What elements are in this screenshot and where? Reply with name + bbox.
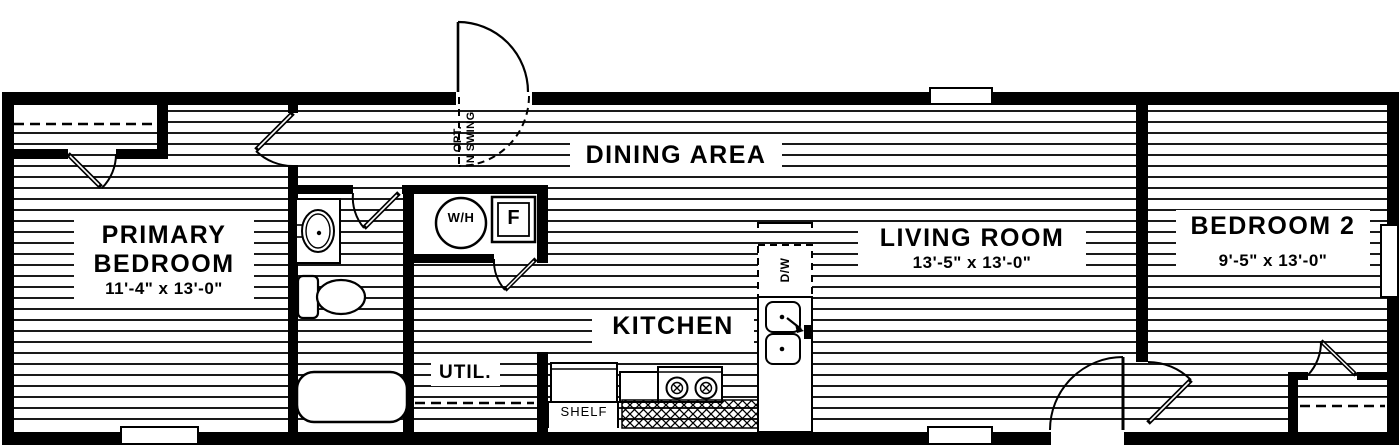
room-name: BEDROOM 2	[1184, 212, 1362, 241]
window-living-bottom	[927, 426, 993, 445]
room-name: BEDROOM	[82, 250, 246, 279]
floor-plan: DINING AREA PRIMARY BEDROOM 11'-4" x 13'…	[0, 0, 1400, 448]
wall-bedroom2-closet-top-left	[1288, 372, 1308, 380]
wall-primary-bedroom	[288, 165, 298, 432]
wall-kitchen-utility-divider	[537, 352, 548, 432]
wall-bedroom2-closet-left	[1288, 372, 1298, 432]
door-swing-note-line1: OPT.	[452, 106, 465, 172]
window-living-top	[929, 87, 993, 105]
room-name: KITCHEN	[600, 312, 746, 341]
wall-exterior-bottom	[2, 432, 1399, 445]
room-label-utility: UTIL.	[431, 360, 500, 386]
wall-utility-closet-bottom	[414, 254, 494, 263]
shelf-label: SHELF	[553, 404, 615, 419]
wall-bathroom-top	[293, 185, 353, 194]
room-dimensions: 13'-5" x 13'-0"	[866, 253, 1078, 273]
rear-door-opening	[1051, 431, 1124, 446]
wall-living-bedroom2-divider	[1136, 105, 1148, 362]
window-primary-bedroom	[120, 426, 199, 445]
wall-bathroom-right	[403, 185, 414, 432]
wall-bedroom2-closet-top-right	[1357, 372, 1387, 380]
room-dimensions: 11'-4" x 13'-0"	[82, 279, 246, 299]
furnace-label: F	[498, 207, 529, 230]
water-heater-label: W/H	[436, 210, 486, 225]
window-bedroom2	[1380, 224, 1399, 298]
door-swing-note: OPT. IN SWING	[452, 106, 478, 172]
wall-utility-closet-right	[537, 185, 548, 263]
room-name: DINING AREA	[578, 141, 774, 170]
wall-primary-closet-bottom-left	[14, 149, 68, 159]
room-name: LIVING ROOM	[866, 224, 1078, 253]
front-door-opening	[456, 91, 532, 106]
wall-primary-bedroom-stub	[288, 105, 298, 113]
wall-utility-closet-top	[402, 185, 548, 194]
dishwasher-label: D/W	[778, 243, 792, 297]
room-label-living: LIVING ROOM 13'-5" x 13'-0"	[858, 222, 1086, 275]
wall-primary-closet-bottom-right	[116, 149, 168, 159]
door-swing-note-line2: IN SWING	[465, 106, 478, 172]
room-name: PRIMARY	[82, 221, 246, 250]
room-dimensions: 9'-5" x 13'-0"	[1184, 251, 1362, 271]
room-label-bedroom2: BEDROOM 2 9'-5" x 13'-0"	[1176, 210, 1370, 273]
room-label-dining: DINING AREA	[570, 139, 782, 172]
room-label-kitchen: KITCHEN	[592, 310, 754, 343]
room-label-primary-bedroom: PRIMARY BEDROOM 11'-4" x 13'-0"	[74, 219, 254, 301]
wall-exterior-top	[2, 92, 1399, 105]
wall-exterior-left	[2, 92, 14, 445]
